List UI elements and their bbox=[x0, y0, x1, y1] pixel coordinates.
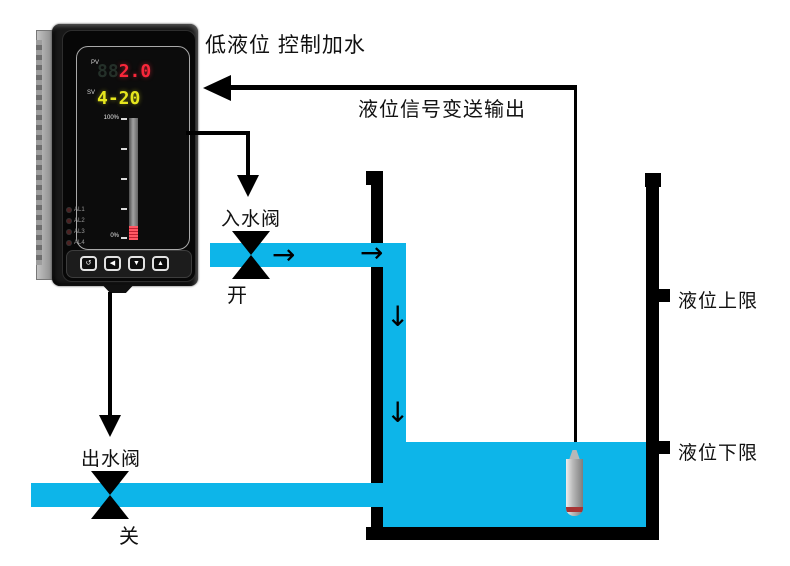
al2-label: AL2 bbox=[74, 218, 85, 224]
inlet-control-arrowhead-icon bbox=[237, 175, 259, 197]
signal-line-horizontal bbox=[228, 85, 577, 90]
level-sensor-probe bbox=[566, 459, 583, 516]
alarm-row-al2: AL2 bbox=[67, 218, 85, 224]
outlet-pipe-horizontal bbox=[31, 483, 383, 507]
al3-label: AL3 bbox=[74, 229, 85, 235]
controller-heatsink-fins bbox=[36, 40, 42, 265]
level-control-diagram: PV 882.0 SV 4-20 100% 0% AL1 AL2 AL3 AL4… bbox=[0, 0, 790, 566]
flow-arrow-right-icon: → bbox=[360, 239, 383, 267]
controller-button-strip: ↺ ◀ ▼ ▲ bbox=[66, 250, 192, 278]
tank-water bbox=[383, 442, 646, 527]
inlet-valve-icon bbox=[232, 231, 270, 255]
upper-limit-marker bbox=[655, 289, 670, 302]
al1-led-icon bbox=[67, 208, 71, 212]
up-button[interactable]: ▲ bbox=[152, 256, 169, 271]
bargraph-scale-top: 100% bbox=[96, 115, 119, 121]
pv-readout: 882.0 bbox=[97, 62, 151, 82]
signal-label: 液位信号变送输出 bbox=[358, 93, 526, 122]
pv-ghost-digits: 88 bbox=[97, 61, 119, 82]
outlet-valve-state: 关 bbox=[119, 520, 140, 549]
al3-led-icon bbox=[67, 230, 71, 234]
alarm-row-al4: AL4 bbox=[67, 240, 85, 246]
diagram-title: 低液位 控制加水 bbox=[205, 29, 366, 59]
bargraph-red-segment bbox=[129, 226, 138, 240]
flow-arrow-down-icon: ↓ bbox=[386, 303, 409, 331]
alarm-row-al1: AL1 bbox=[67, 207, 85, 213]
lower-limit-marker bbox=[655, 441, 670, 454]
upper-limit-label: 液位上限 bbox=[678, 286, 758, 313]
cycle-button[interactable]: ↺ bbox=[80, 256, 97, 271]
sensor-cable bbox=[574, 85, 577, 453]
bargraph-tick bbox=[121, 208, 127, 210]
inlet-control-line-horizontal bbox=[186, 131, 248, 135]
controller-bottom-tab bbox=[96, 285, 140, 293]
alarm-row-al3: AL3 bbox=[67, 229, 85, 235]
pv-value: 2.0 bbox=[119, 61, 152, 82]
al1-label: AL1 bbox=[74, 207, 85, 213]
bargraph-tick bbox=[121, 118, 127, 120]
tank-right-wall bbox=[646, 173, 659, 540]
lower-limit-label: 液位下限 bbox=[678, 438, 758, 465]
flow-arrow-right-icon: → bbox=[272, 241, 295, 269]
tank-bottom bbox=[366, 527, 659, 540]
signal-arrowhead-left-icon bbox=[203, 75, 231, 101]
inlet-valve-label: 入水阀 bbox=[221, 204, 281, 231]
al2-led-icon bbox=[67, 219, 71, 223]
outlet-valve-icon bbox=[91, 471, 129, 495]
sv-label: SV bbox=[87, 90, 95, 96]
inlet-valve-state: 开 bbox=[227, 279, 248, 308]
sv-readout: 4-20 bbox=[97, 89, 140, 109]
bargraph-tick bbox=[121, 178, 127, 180]
inlet-control-line-vertical bbox=[246, 131, 250, 177]
outlet-valve-label: 出水阀 bbox=[81, 444, 141, 471]
outlet-control-arrowhead-icon bbox=[99, 415, 121, 437]
al4-led-icon bbox=[67, 241, 71, 245]
outlet-valve-icon-lower bbox=[91, 495, 129, 519]
al4-label: AL4 bbox=[74, 240, 85, 246]
inlet-valve-icon-lower bbox=[232, 255, 270, 279]
down-button[interactable]: ▼ bbox=[128, 256, 145, 271]
level-bargraph bbox=[129, 118, 138, 240]
bargraph-tick bbox=[121, 148, 127, 150]
left-button[interactable]: ◀ bbox=[104, 256, 121, 271]
sv-value: 4-20 bbox=[97, 88, 140, 109]
bargraph-tick bbox=[121, 237, 127, 239]
bargraph-scale-bottom: 0% bbox=[104, 233, 119, 239]
level-sensor-red-band bbox=[566, 507, 583, 512]
outlet-control-line-vertical bbox=[108, 292, 112, 417]
flow-arrow-down-icon: ↓ bbox=[386, 399, 409, 427]
